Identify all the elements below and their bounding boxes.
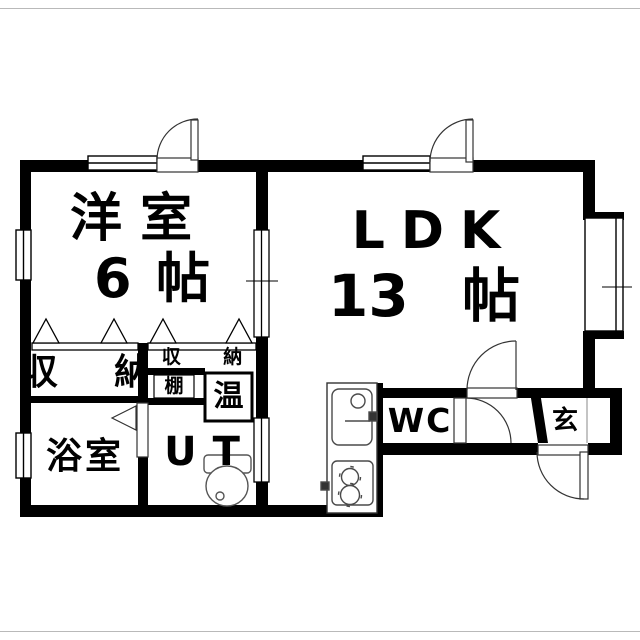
- shelf-label: 棚: [154, 375, 194, 398]
- western-room-name: 洋 室: [70, 193, 192, 245]
- closet-left-label: 収 納: [34, 349, 138, 396]
- western-size-unit: 帖: [156, 252, 210, 306]
- western-room-size: 6 帖: [94, 248, 210, 310]
- door-ldk-hall: [467, 341, 517, 398]
- ldk-size-unit: 帖: [462, 267, 520, 325]
- door-western-top: [157, 119, 198, 172]
- bathroom-label: 浴室: [32, 412, 138, 502]
- ldk-size-value: 13: [328, 267, 409, 325]
- wall-corridor-bottom-b: [588, 443, 622, 455]
- wall-bath-ut-lower: [138, 457, 148, 517]
- wc-label: WC: [383, 396, 457, 445]
- floorplan-page: 洋 室 6 帖 LDK 13 帖 収 納 収 納 棚 温 浴室 UT WC 玄: [0, 0, 640, 640]
- ldk-size: 13 帖: [328, 262, 520, 330]
- closet-right-label: 収 納: [148, 346, 256, 369]
- folding-door-icon: [101, 319, 127, 343]
- wall-divider-upper: [256, 172, 268, 230]
- folding-door-icon: [150, 319, 176, 343]
- folding-door-icon: [33, 319, 59, 343]
- door-entrance: [537, 445, 588, 499]
- western-room-label: 洋 室: [70, 190, 212, 248]
- toilet-drain: [216, 492, 224, 500]
- gas-valve-block: [321, 482, 329, 490]
- window-ldk-bay: [585, 218, 623, 331]
- utility-label: UT: [148, 424, 256, 479]
- water-heater-label: 温: [205, 373, 252, 421]
- wall-closet-left-bottom: [31, 396, 148, 403]
- faucet-icon: [351, 394, 365, 408]
- burner-icon: [341, 486, 360, 505]
- wall-right-upper: [583, 160, 595, 218]
- kitchen-counter: [321, 383, 377, 513]
- floorplan-drawing: [0, 0, 640, 640]
- wall-shelf-bottom: [148, 398, 205, 405]
- bay-window-bottom-cap: [583, 331, 624, 339]
- door-ldk-top: [430, 119, 473, 172]
- western-size-value: 6: [94, 252, 132, 306]
- folding-door-icon: [226, 319, 252, 343]
- wall-right-mid: [583, 339, 595, 392]
- tap-block: [369, 412, 377, 421]
- burner-icon: [342, 469, 359, 486]
- ldk-name: LDK: [352, 205, 517, 257]
- wall-divider-lower: [256, 482, 268, 517]
- wall-top-c: [473, 160, 595, 172]
- door-wc: [454, 398, 511, 443]
- entrance-label: 玄: [541, 396, 589, 445]
- ldk-label: LDK: [344, 202, 524, 260]
